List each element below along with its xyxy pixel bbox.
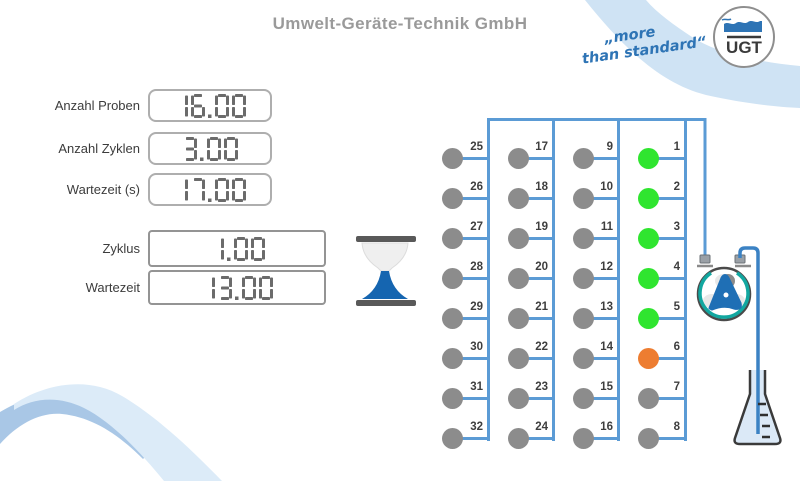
port-20-label: 20 bbox=[512, 261, 548, 273]
port-16-label: 16 bbox=[577, 421, 613, 433]
port-27-connector bbox=[458, 237, 488, 240]
ugt-logo: UGT bbox=[713, 6, 775, 68]
port-24-label: 24 bbox=[512, 421, 548, 433]
wartezeit-s-value bbox=[174, 178, 246, 202]
port-19-label: 19 bbox=[512, 221, 548, 233]
port-8-connector bbox=[654, 437, 685, 440]
port-32-connector bbox=[458, 437, 488, 440]
port-3-connector bbox=[654, 237, 685, 240]
erlenmeyer-flask-icon bbox=[735, 248, 781, 444]
display-zyklus bbox=[148, 230, 326, 267]
port-6-connector bbox=[654, 357, 685, 360]
port-30-label: 30 bbox=[447, 341, 483, 353]
logo-wave-dash-icon bbox=[722, 19, 731, 20]
port-17-label: 17 bbox=[512, 141, 548, 153]
port-29-label: 29 bbox=[447, 301, 483, 313]
display-anzahl-zyklen[interactable] bbox=[148, 132, 272, 165]
port-22-label: 22 bbox=[512, 341, 548, 353]
port-28-label: 28 bbox=[447, 261, 483, 273]
port-23-label: 23 bbox=[512, 381, 548, 393]
port-30-connector bbox=[458, 357, 488, 360]
port-11-label: 11 bbox=[577, 221, 613, 233]
port-1-connector bbox=[654, 157, 685, 160]
port-25-label: 25 bbox=[447, 141, 483, 153]
display-wartezeit-s[interactable] bbox=[148, 173, 272, 206]
port-2-label: 2 bbox=[644, 181, 680, 193]
logo-wave-icon bbox=[724, 21, 762, 32]
port-21-label: 21 bbox=[512, 301, 548, 313]
port-5-connector bbox=[654, 317, 685, 320]
port-12-label: 12 bbox=[577, 261, 613, 273]
hourglass-icon bbox=[356, 236, 416, 306]
label-zyklus: Zyklus bbox=[0, 230, 140, 267]
label-wartezeit-s: Wartezeit (s) bbox=[0, 173, 140, 206]
port-1-label: 1 bbox=[644, 141, 680, 153]
label-wartezeit: Wartezeit bbox=[0, 270, 140, 305]
port-32-label: 32 bbox=[447, 421, 483, 433]
port-31-connector bbox=[458, 397, 488, 400]
port-5-label: 5 bbox=[644, 301, 680, 313]
port-7-connector bbox=[654, 397, 685, 400]
anzahl-zyklen-value bbox=[183, 137, 238, 161]
port-27-label: 27 bbox=[447, 221, 483, 233]
port-2-connector bbox=[654, 197, 685, 200]
decor-swoosh-bottom-light bbox=[14, 384, 222, 481]
label-anzahl-proben: Anzahl Proben bbox=[0, 89, 140, 122]
display-anzahl-proben[interactable] bbox=[148, 89, 272, 122]
display-wartezeit bbox=[148, 270, 326, 305]
port-26-connector bbox=[458, 197, 488, 200]
port-10-label: 10 bbox=[577, 181, 613, 193]
port-4-connector bbox=[654, 277, 685, 280]
port-14-label: 14 bbox=[577, 341, 613, 353]
port-26-label: 26 bbox=[447, 181, 483, 193]
port-7-label: 7 bbox=[644, 381, 680, 393]
port-25-connector bbox=[458, 157, 488, 160]
label-anzahl-zyklen: Anzahl Zyklen bbox=[0, 132, 140, 165]
anzahl-proben-value bbox=[174, 94, 246, 118]
pump-outlet-tube bbox=[740, 248, 758, 434]
zyklus-value bbox=[210, 237, 265, 261]
app-window: Umwelt-Geräte-Technik GmbH „more than st… bbox=[0, 0, 800, 481]
port-3-label: 3 bbox=[644, 221, 680, 233]
peristaltic-pump-icon bbox=[697, 255, 751, 320]
decor-swoosh-bottom-dark bbox=[0, 394, 162, 459]
logo-text: UGT bbox=[726, 38, 763, 57]
port-4-label: 4 bbox=[644, 261, 680, 273]
port-13-label: 13 bbox=[577, 301, 613, 313]
port-29-connector bbox=[458, 317, 488, 320]
port-31-label: 31 bbox=[447, 381, 483, 393]
wartezeit-value bbox=[201, 276, 273, 300]
port-6-label: 6 bbox=[644, 341, 680, 353]
port-28-connector bbox=[458, 277, 488, 280]
port-18-label: 18 bbox=[512, 181, 548, 193]
port-8-label: 8 bbox=[644, 421, 680, 433]
port-15-label: 15 bbox=[577, 381, 613, 393]
port-9-label: 9 bbox=[577, 141, 613, 153]
